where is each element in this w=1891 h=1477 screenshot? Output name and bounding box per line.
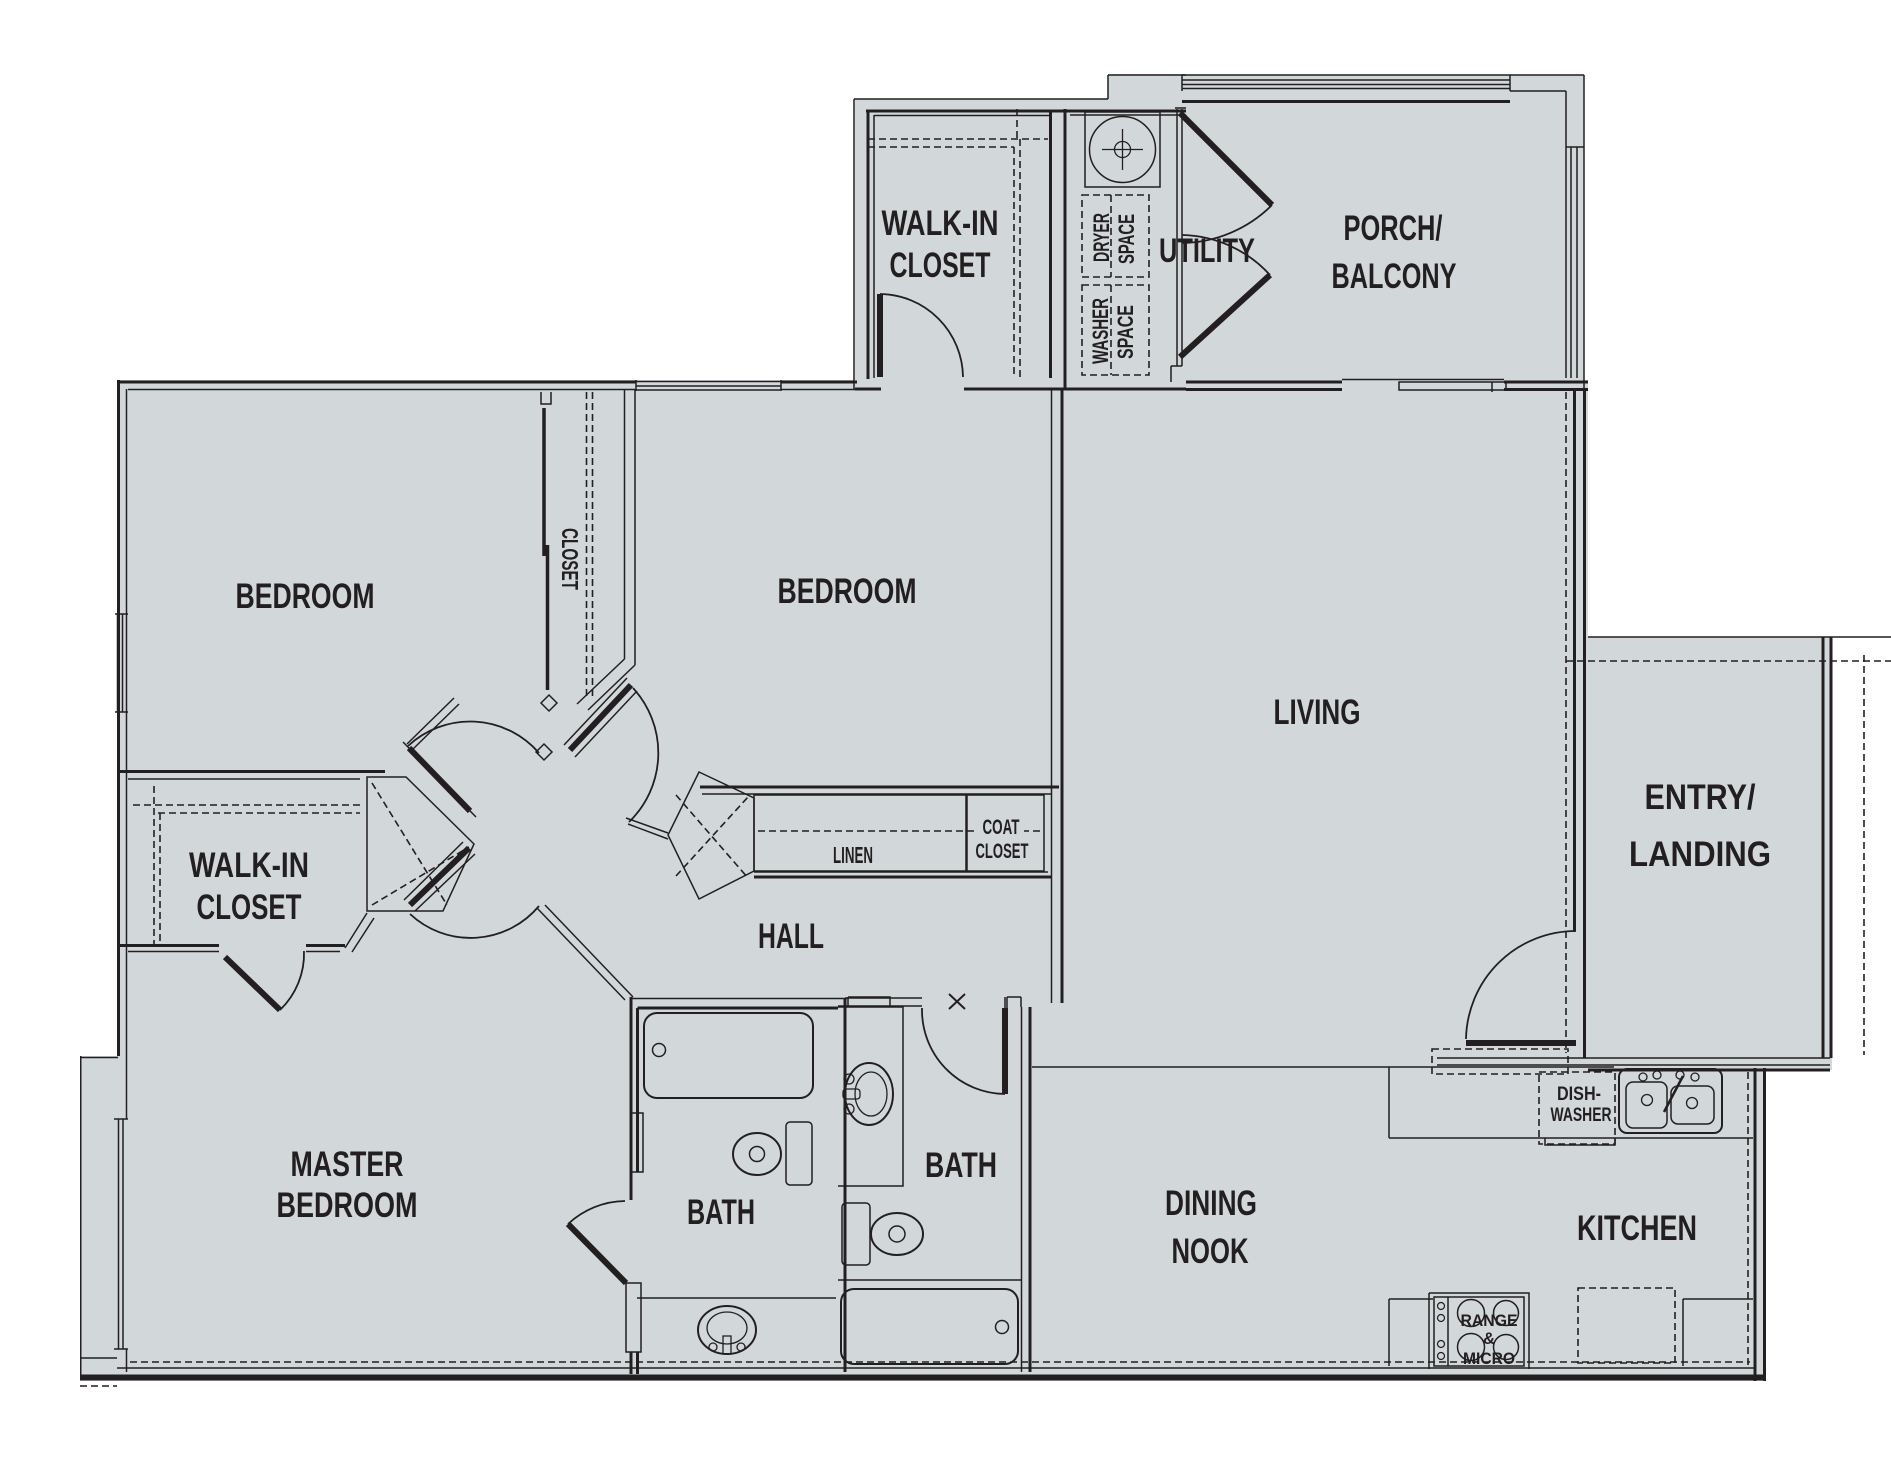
svg-text:CLOSET: CLOSET xyxy=(976,840,1029,863)
svg-text:SPACE: SPACE xyxy=(1113,305,1138,359)
svg-text:LINEN: LINEN xyxy=(833,842,873,868)
svg-text:LANDING: LANDING xyxy=(1629,835,1771,874)
svg-text:WALK-IN: WALK-IN xyxy=(882,204,999,243)
svg-text:LIVING: LIVING xyxy=(1274,693,1361,732)
svg-text:COAT: COAT xyxy=(983,816,1020,839)
svg-text:&: & xyxy=(1483,1329,1495,1348)
svg-text:BEDROOM: BEDROOM xyxy=(778,572,917,611)
svg-text:UTILITY: UTILITY xyxy=(1159,232,1255,270)
svg-text:BEDROOM: BEDROOM xyxy=(277,1186,418,1225)
svg-text:WALK-IN: WALK-IN xyxy=(189,846,309,885)
svg-text:KITCHEN: KITCHEN xyxy=(1577,1209,1697,1248)
svg-text:RANGE: RANGE xyxy=(1461,1311,1518,1330)
svg-text:ENTRY/: ENTRY/ xyxy=(1645,778,1756,817)
svg-text:CLOSET: CLOSET xyxy=(197,888,302,927)
svg-text:WASHER: WASHER xyxy=(1551,1105,1612,1126)
svg-text:SPACE: SPACE xyxy=(1114,214,1139,264)
svg-text:BATH: BATH xyxy=(687,1193,755,1232)
svg-text:BATH: BATH xyxy=(925,1146,997,1185)
svg-text:MASTER: MASTER xyxy=(291,1145,404,1184)
svg-text:DINING: DINING xyxy=(1165,1184,1257,1223)
svg-text:NOOK: NOOK xyxy=(1172,1232,1249,1271)
svg-text:BALCONY: BALCONY xyxy=(1332,257,1457,296)
svg-text:MICRO: MICRO xyxy=(1463,1349,1515,1368)
svg-text:CLOSET: CLOSET xyxy=(557,528,583,590)
svg-text:DRYER: DRYER xyxy=(1089,213,1114,262)
svg-text:WASHER: WASHER xyxy=(1088,298,1113,364)
svg-text:CLOSET: CLOSET xyxy=(890,246,991,285)
svg-text:BEDROOM: BEDROOM xyxy=(236,577,375,616)
svg-text:HALL: HALL xyxy=(758,917,824,956)
svg-text:DISH-: DISH- xyxy=(1557,1084,1601,1105)
svg-text:PORCH/: PORCH/ xyxy=(1344,209,1443,248)
